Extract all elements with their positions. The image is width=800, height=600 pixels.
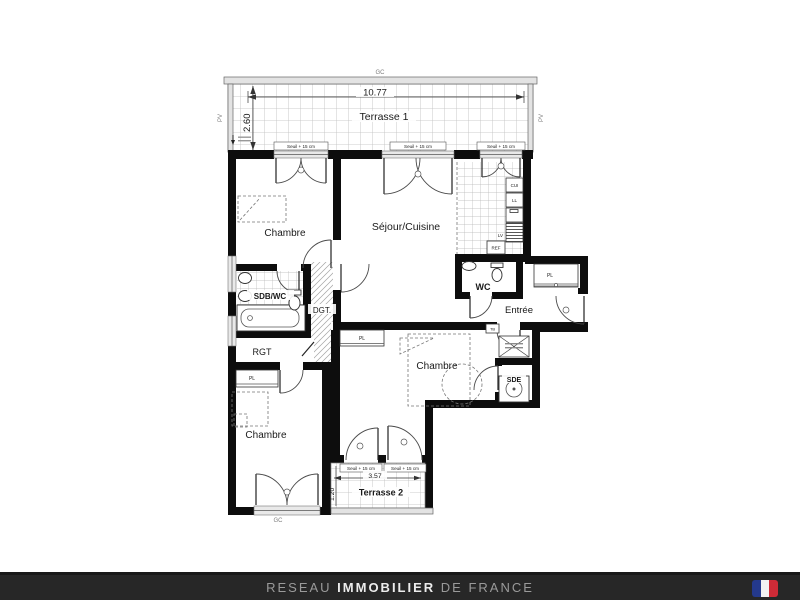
cui-label: CUI [511, 183, 519, 188]
rgt-label: RGT [253, 347, 273, 357]
lv-label: LV [498, 233, 503, 238]
ll-label: LL [512, 198, 518, 203]
seuil-label: Seuil + 15 cm [391, 466, 419, 471]
terrasse1-top-edge [224, 77, 537, 84]
brand-main: IMMOBILIER [337, 580, 435, 595]
brand-suffix: DE FRANCE [435, 580, 534, 595]
terrasse1-label: Terrasse 1 [359, 111, 408, 123]
basin-icon [239, 273, 252, 284]
footer-bar: RESEAU IMMOBILIER DE FRANCE [0, 572, 800, 600]
terrasse1-width-dim: 10.77 [363, 88, 387, 99]
sde-label: SDE [507, 377, 522, 384]
electrical-board: TB [486, 324, 499, 333]
pl-label: PL [359, 336, 365, 342]
floor-plan: GC PV PV 10.77 2.60 Terrasse 1 [0, 0, 800, 572]
terrasse-1: GC PV PV 10.77 2.60 Terrasse 1 [218, 70, 545, 152]
gc-label-top: GC [376, 70, 386, 76]
technical-closet [499, 336, 529, 357]
toilet-icon [491, 263, 503, 282]
seuil-label: Seuil + 15 cm [347, 466, 375, 471]
chambre3-label: Chambre [245, 430, 287, 441]
seuil-label: Seuil + 15 cm [487, 144, 515, 149]
terrasse1-depth-dim: 2.60 [242, 114, 253, 133]
closet-chambre3: PL [236, 370, 278, 387]
seuil-label: Seuil + 15 cm [287, 144, 315, 149]
floorplan-page: { "plan": { "rooms": { "terrasse1": "Ter… [0, 0, 800, 600]
closet-entree: PL [534, 264, 578, 287]
pl-label: PL [547, 273, 553, 279]
chambre1-label: Chambre [264, 228, 306, 239]
wc-label: WC [476, 282, 491, 292]
dgt-label: DGT. [313, 306, 331, 315]
gc-label-bottom: GC [274, 518, 284, 524]
brand-prefix: RESEAU [266, 580, 337, 595]
terrasse2-width-dim: 3.57 [368, 473, 381, 480]
sdb-wc-label: SDB/WC [254, 292, 287, 301]
terrasse2-label: Terrasse 2 [359, 488, 403, 498]
sejour-cuisine-label: Séjour/Cuisine [372, 221, 440, 233]
terrasse2-depth-dim: 1.20 [329, 488, 336, 501]
pv-label-left: PV [218, 114, 224, 122]
chambre2-label: Chambre [416, 361, 458, 372]
france-flag-icon [752, 580, 778, 597]
ref-label: REF [492, 246, 501, 251]
entree-label: Entrée [505, 305, 533, 316]
basin-icon [462, 262, 476, 271]
terrasse2-bottom-edge [331, 508, 433, 514]
floor-plan-svg: GC PV PV 10.77 2.60 Terrasse 1 [0, 0, 800, 572]
walls [228, 150, 588, 515]
brand-text: RESEAU IMMOBILIER DE FRANCE [266, 580, 534, 595]
tb-label: TB [490, 327, 495, 332]
closet-chambre2: PL [340, 330, 384, 346]
terrasse1-right-edge [528, 84, 533, 152]
pv-label-right: PV [539, 114, 545, 122]
pl-label: PL [249, 376, 255, 382]
seuil-label: Seuil + 15 cm [404, 144, 432, 149]
